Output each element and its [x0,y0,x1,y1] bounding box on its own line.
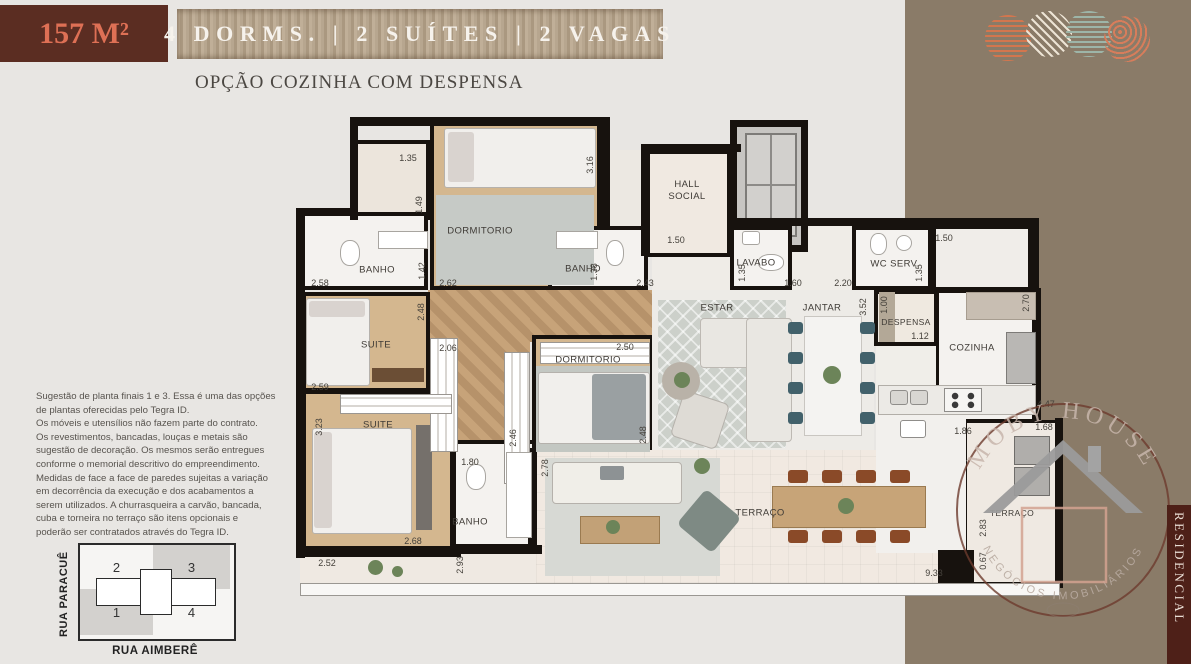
room-label: COZINHA [949,343,995,354]
toilet [340,240,360,266]
wall [641,144,741,152]
dimension: 2.83 [978,519,988,537]
dimension: 3.16 [585,156,595,174]
dimension: 4.47 [1037,399,1055,409]
floorplan-page: 157 M² 4 DORMS. | 2 SUÍTES | 2 VAGAS OPÇ… [0,0,1191,664]
dimension: 1.35 [914,264,924,282]
room-label: DORMITORIO [447,226,513,237]
wall [1030,218,1039,293]
room-label: DORMITORIO [555,355,621,366]
plant [368,560,383,575]
room-label: ESTAR [701,303,734,314]
dryer [1014,467,1050,496]
toilet [606,240,624,266]
room-label: HALL SOCIAL [661,179,713,203]
vanity [506,452,532,538]
room-label: SUITE [363,420,393,431]
cushion [600,466,624,480]
terrace-parapet [300,583,1060,596]
wall [296,548,461,557]
dimension: 1.86 [954,426,972,436]
plant [392,566,403,577]
dimension: 1.00 [879,296,889,314]
laundry-sink [900,420,926,438]
dimension: 1.60 [784,278,802,288]
dining-chair [788,382,803,394]
outdoor-chair [788,530,808,543]
plant [838,498,854,514]
room-label: DESPENSA [881,317,931,327]
fridge [1006,332,1036,384]
plant [823,366,841,384]
wall [296,208,305,558]
dimension: 2.93 [455,556,465,574]
dimension: 2.50 [616,342,634,352]
plant [674,372,690,388]
desk [372,368,424,382]
dimension: 1.42 [417,262,427,280]
outdoor-chair [856,470,876,483]
dimension: 2.59 [311,382,329,392]
dimension: 1.80 [461,457,479,467]
dimension: 1.35 [399,153,417,163]
wall [728,218,1038,226]
outdoor-chair [822,470,842,483]
room-label: TERRAÇO [990,508,1034,518]
room-label: JANTAR [803,303,842,314]
dimension: 1.49 [414,196,424,214]
outdoor-chair [890,530,910,543]
dimension: 0.67 [978,552,988,570]
dimension: 2.48 [638,426,648,444]
wall [641,144,650,256]
plant [694,458,710,474]
dimension: 2.46 [508,429,518,447]
washer [1014,436,1050,465]
dimension: 1.50 [667,235,685,245]
dimension: 3.52 [858,298,868,316]
dimension: 9.33 [925,568,943,578]
pillow [314,432,332,528]
dining-chair [860,322,875,334]
room-label: TERRAÇO [735,508,784,519]
room-label: WC SERV. [870,259,919,270]
pillow [309,301,365,317]
room-label: BANHO [359,265,395,276]
outdoor-chair [856,530,876,543]
sink [742,231,760,245]
wall [601,117,610,227]
dining-chair [860,412,875,424]
plant [606,520,620,534]
residencial-label: RESIDENCIAL [1171,512,1187,662]
wall [296,208,356,216]
dimension: 2.48 [416,303,426,321]
dining-chair [788,322,803,334]
dining-chair [788,412,803,424]
dimension: 2.58 [311,278,329,288]
dimension: 2.20 [834,278,852,288]
outdoor-chair [822,530,842,543]
vanity [378,231,428,249]
toilet [466,464,486,490]
outdoor-chair [890,470,910,483]
room-label: SUITE [361,340,391,351]
dimension: 2.52 [318,558,336,568]
dimension: 2.70 [1021,294,1031,312]
dimension: 2.78 [540,459,550,477]
washbasin [896,235,912,251]
dimension: 2.68 [404,536,422,546]
pillow [448,132,474,182]
dimension: 2.62 [439,278,457,288]
toilet [870,233,887,255]
dimension: 3.23 [314,418,324,436]
dining-chair [860,352,875,364]
dining-chair [788,352,803,364]
wall [350,117,610,126]
wall [1055,418,1063,588]
sink [890,390,908,405]
room-hall-social [645,150,731,257]
sink [910,390,928,405]
cooktop [944,388,982,412]
dimension: 1.50 [935,233,953,243]
dimension: 2.06 [439,343,457,353]
dimension: 1.68 [1035,422,1053,432]
vanity [556,231,598,249]
dimension: 1.38 [589,263,599,281]
dimension: 1.35 [737,264,747,282]
outdoor-chair [788,470,808,483]
wardrobe [340,394,452,414]
outdoor-coffee-table [580,516,660,544]
wall [350,117,358,220]
dimension: 2.43 [636,278,654,288]
dining-chair [860,382,875,394]
floor-plan: DORMITORIO BANHO BANHO HALL SOCIAL LAVAB… [0,0,1191,664]
room-label: BANHO [452,517,488,528]
sofa-chaise [746,318,792,442]
dimension: 1.12 [911,331,929,341]
